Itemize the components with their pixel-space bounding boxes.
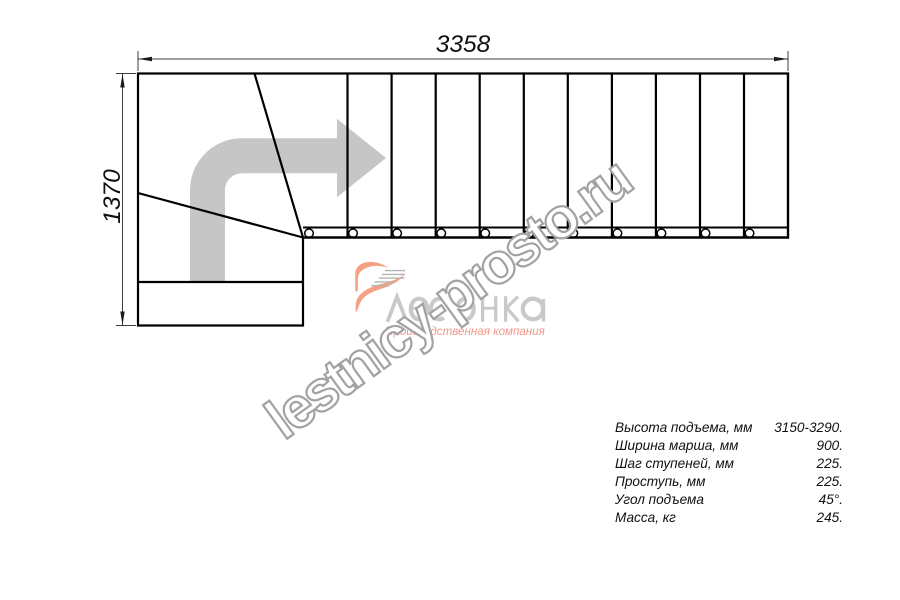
svg-text:1370: 1370: [99, 169, 126, 224]
svg-text:45°.: 45°.: [819, 492, 843, 507]
svg-text:Высота подъема, мм: Высота подъема, мм: [615, 420, 753, 435]
svg-text:Масса, кг: Масса, кг: [615, 510, 676, 525]
svg-text:225.: 225.: [816, 456, 843, 471]
svg-text:Проступь, мм: Проступь, мм: [615, 474, 706, 489]
svg-text:3150-3290.: 3150-3290.: [774, 420, 843, 435]
svg-text:245.: 245.: [816, 510, 843, 525]
svg-text:Шаг ступеней, мм: Шаг ступеней, мм: [615, 456, 735, 471]
svg-text:225.: 225.: [816, 474, 843, 489]
svg-text:lestnicy-prosto.ru: lestnicy-prosto.ru: [254, 145, 644, 451]
svg-text:900.: 900.: [817, 438, 843, 453]
svg-text:Угол подъема: Угол подъема: [614, 492, 704, 507]
svg-text:Ширина марша, мм: Ширина марша, мм: [615, 438, 739, 453]
svg-text:3358: 3358: [436, 31, 491, 58]
